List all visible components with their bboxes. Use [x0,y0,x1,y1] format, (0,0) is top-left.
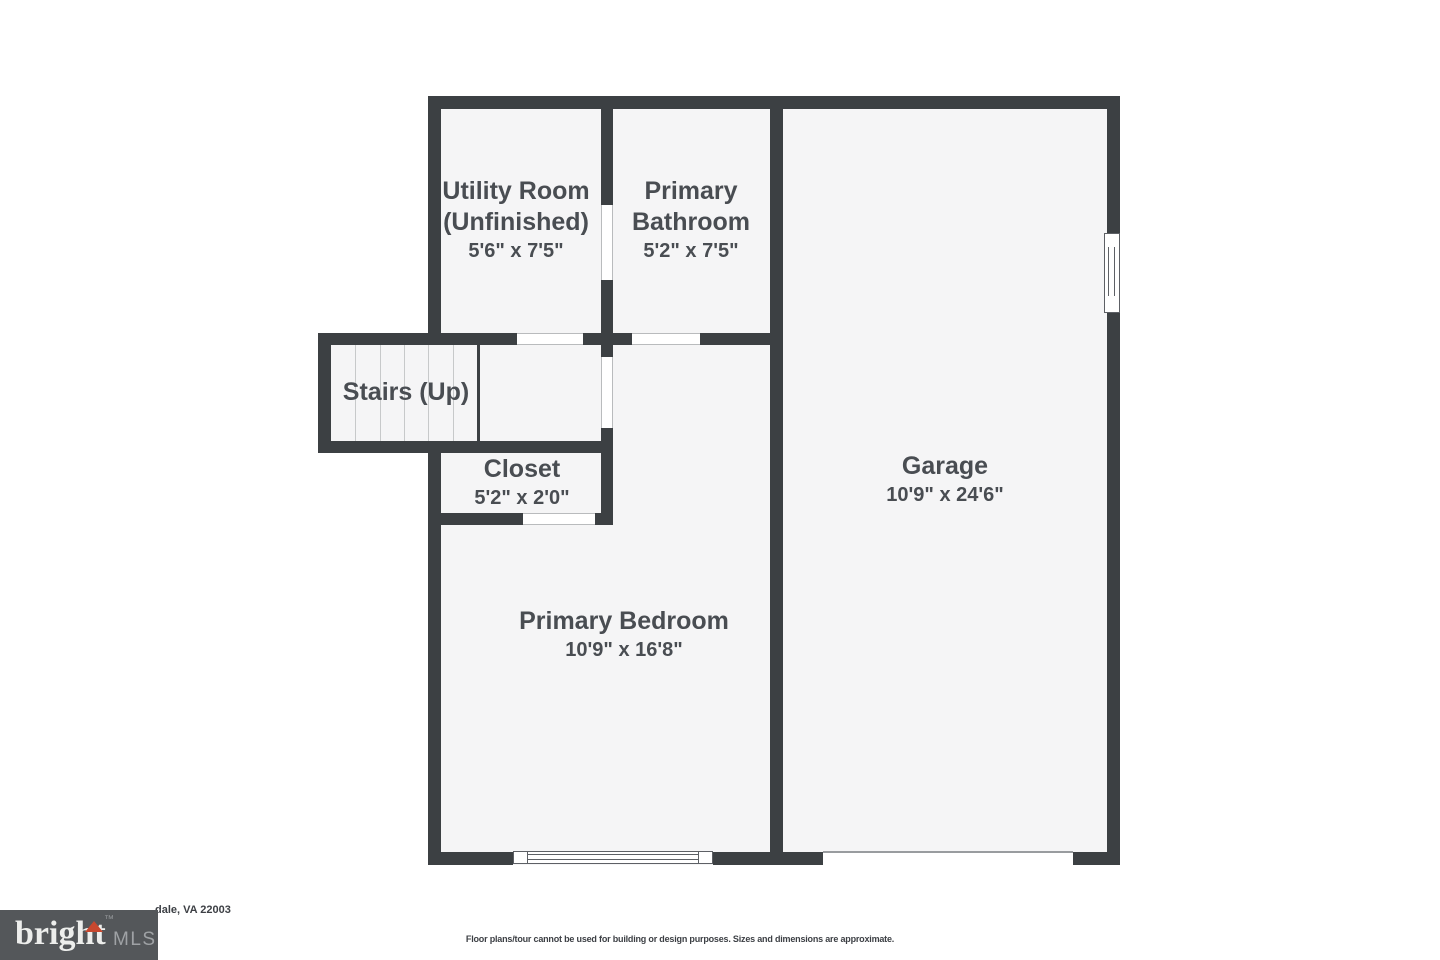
room-label-stairs: Stairs (Up) [343,377,469,408]
wall-partition-lower [601,280,613,333]
brand-logo-triangle-icon [85,921,103,932]
room-dims: 5'2" x 7'5" [632,238,750,265]
garage-door-opening [823,851,1073,865]
wall-closet-bottom-b [595,513,613,525]
window-bedroom-glass [528,854,698,860]
wall-closet-right [601,428,613,525]
wall-stairs-left [318,333,331,453]
wall-closet-bottom-a [428,513,523,525]
wall-mid-c [700,333,783,345]
wall-partition-upper [601,109,613,205]
room-name: Closet [474,454,569,485]
wall-mid-b [583,333,632,345]
door-opening-landing-bedroom [601,357,613,428]
window-bedroom-endcap [698,851,699,864]
wall-bottom-right [1073,852,1120,865]
room-name: (Unfinished) [442,207,589,238]
wall-bedroom-left [428,441,441,865]
room-name: Garage [886,451,1003,482]
wall-garage-left [770,96,783,865]
window-garage-glass [1108,247,1115,296]
room-label-garage: Garage 10'9" x 24'6" [886,451,1003,509]
door-opening-bathroom [632,333,700,345]
room-dims: 10'9" x 16'8" [519,637,729,664]
brand-logo-box: bright ™ MLS [0,910,158,960]
floor-plan: Utility Room (Unfinished) 5'6" x 7'5" Pr… [0,0,1440,960]
wall-landing-right-a [601,345,613,357]
wall-left-upper [428,96,441,345]
room-label-bathroom: Primary Bathroom 5'2" x 7'5" [632,176,750,265]
room-dims: 10'9" x 24'6" [886,482,1003,509]
room-label-closet: Closet 5'2" x 2'0" [474,454,569,512]
wall-stairs-bottom [318,441,613,453]
room-label-utility: Utility Room (Unfinished) 5'6" x 7'5" [442,176,589,265]
room-name: Bathroom [632,207,750,238]
room-dims: 5'2" x 2'0" [474,485,569,512]
room-name: Utility Room [442,176,589,207]
room-name: Primary Bedroom [519,606,729,637]
address-text: dale, VA 22003 [155,904,231,916]
room-dims: 5'6" x 7'5" [442,238,589,265]
wall-mid-a [318,333,517,345]
disclaimer-text: Floor plans/tour cannot be used for buil… [466,934,894,944]
brand-logo-mls: MLS [113,929,157,951]
door-opening-closet [523,513,595,525]
door-opening-utility [517,333,583,345]
room-name: Primary [632,176,750,207]
brand-logo-tm: ™ [104,914,114,925]
wall-garage-right [1107,96,1120,865]
room-label-bedroom: Primary Bedroom 10'9" x 16'8" [519,606,729,664]
wall-bottom-mid [713,852,823,865]
door-opening-utility-bathroom [601,205,613,280]
stair-landing-divider [477,345,480,441]
room-name: Stairs (Up) [343,377,469,408]
